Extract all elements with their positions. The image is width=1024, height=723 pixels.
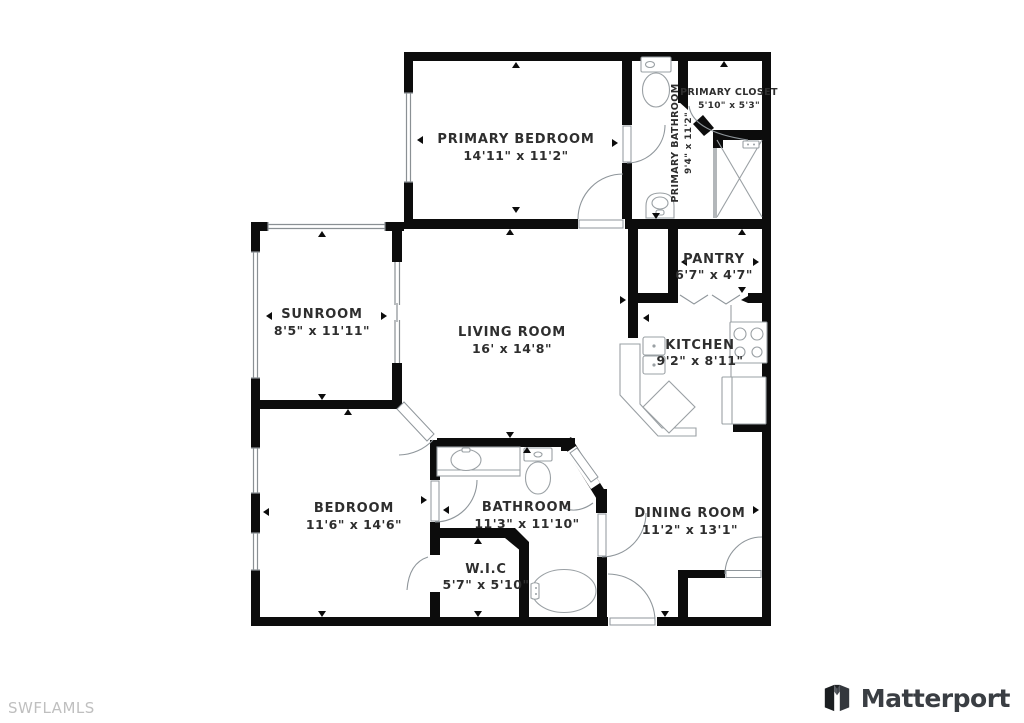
door-bathroom-inner: [430, 480, 477, 522]
matterport-logo: Matterport: [822, 683, 1010, 713]
window-bedroom-left-2: [251, 533, 260, 570]
room-label: KITCHEN: [665, 338, 735, 353]
room-label: PRIMARY BEDROOM: [437, 132, 594, 147]
room-label: PRIMARY CLOSET: [680, 87, 778, 98]
matterport-logo-icon: [822, 683, 852, 713]
room-wic: W.I.C 5'7" x 5'10": [443, 562, 530, 592]
room-dims: 9'4" x 11'2": [684, 112, 694, 174]
door-primary-bathroom: [622, 125, 665, 163]
room-pantry: PANTRY 6'7" x 4'7": [675, 252, 753, 282]
room-label: PRIMARY BATHROOM: [670, 83, 681, 202]
door-dining-closet: [725, 537, 762, 578]
watermark: SWFLAMLS: [8, 699, 95, 717]
primary-toilet: [641, 57, 671, 107]
room-bedroom: BEDROOM 11'6" x 14'6": [306, 501, 402, 532]
window-sunroom-top: [268, 222, 385, 231]
window-sunroom-left: [251, 252, 260, 378]
primary-shower: [713, 140, 762, 218]
room-label: LIVING ROOM: [458, 325, 566, 340]
floor-plan-page: PRIMARY BEDROOM 14'11" x 11'2" PRIMARY C…: [0, 0, 1024, 723]
door-pantry-bifold: [680, 295, 748, 304]
room-dims: 11'6" x 14'6": [306, 517, 402, 532]
room-label: PANTRY: [683, 252, 745, 267]
room-label: BEDROOM: [314, 501, 394, 516]
room-dining-room: DINING ROOM 11'2" x 13'1": [634, 506, 745, 537]
door-entry: [608, 574, 657, 626]
bathroom-vanity: [437, 447, 520, 476]
wall-diagonal-wic: [505, 528, 529, 552]
room-label: W.I.C: [465, 562, 507, 577]
room-dims: 6'7" x 4'7": [675, 267, 753, 282]
bathroom-tub: [531, 570, 596, 613]
brand-name: Matterport: [861, 684, 1010, 713]
door-primary-bedroom: [578, 174, 625, 229]
window-bedroom-left-1: [251, 448, 260, 493]
room-bathroom: BATHROOM 11'3" x 11'10": [474, 500, 579, 531]
room-dims: 11'3" x 11'10": [474, 516, 579, 531]
room-label: DINING ROOM: [634, 506, 745, 521]
room-label: BATHROOM: [482, 500, 572, 515]
room-dims: 5'10" x 5'3": [698, 101, 760, 111]
room-kitchen: KITCHEN 9'2" x 8'11": [657, 338, 744, 368]
room-dims: 5'7" x 5'10": [443, 577, 530, 592]
floor-plan: PRIMARY BEDROOM 14'11" x 11'2" PRIMARY C…: [0, 0, 1024, 723]
room-living-room: LIVING ROOM 16' x 14'8": [458, 325, 566, 356]
door-bedroom-corner: [397, 402, 434, 455]
room-label: SUNROOM: [281, 307, 362, 322]
window-primary-bedroom-left: [404, 93, 413, 182]
room-dims: 9'2" x 8'11": [657, 353, 744, 368]
room-sunroom: SUNROOM 8'5" x 11'11": [274, 307, 370, 338]
kitchen-fridge: [722, 377, 766, 424]
room-dims: 14'11" x 11'2": [463, 148, 568, 163]
bathroom-toilet: [524, 448, 552, 494]
room-labels: PRIMARY BEDROOM 14'11" x 11'2" PRIMARY C…: [274, 83, 778, 592]
room-dims: 11'2" x 13'1": [642, 522, 738, 537]
window-sunroom-glass-divider: [392, 262, 402, 363]
room-dims: 8'5" x 11'11": [274, 323, 370, 338]
room-primary-bedroom: PRIMARY BEDROOM 14'11" x 11'2": [437, 132, 594, 163]
room-dims: 16' x 14'8": [472, 341, 552, 356]
door-wic: [407, 557, 428, 590]
